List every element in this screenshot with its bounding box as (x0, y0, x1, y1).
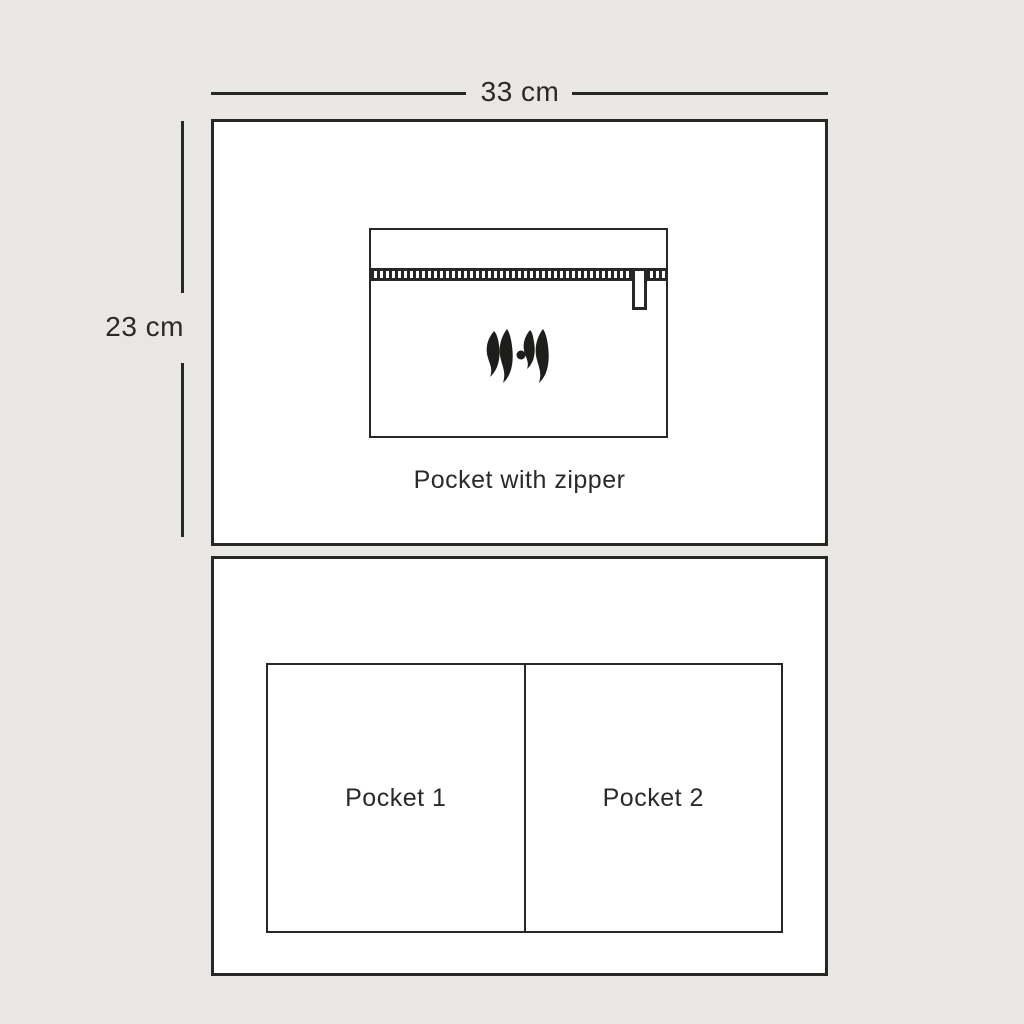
zipper-teeth (371, 268, 666, 281)
width-dimension-line-left (211, 92, 466, 95)
pocket-1: Pocket 1 (268, 665, 526, 931)
height-dimension-line-bottom (181, 363, 184, 537)
zipper-pull (632, 268, 647, 310)
bag-spec-diagram: 33 cm 23 cm Pocket with zipp (0, 0, 1024, 1024)
front-panel-caption: Pocket with zipper (214, 466, 825, 495)
height-dimension-label: 23 cm (70, 311, 184, 343)
width-dimension-label: 33 cm (455, 76, 585, 108)
pocket-2-label: Pocket 2 (603, 784, 704, 813)
front-panel: Pocket with zipper (211, 119, 828, 546)
brand-monogram-icon (483, 328, 555, 386)
brand-monogram-logo (483, 328, 555, 386)
width-dimension-line-right (572, 92, 828, 95)
slip-pockets: Pocket 1 Pocket 2 (266, 663, 783, 933)
pocket-2: Pocket 2 (526, 665, 782, 931)
pocket-1-label: Pocket 1 (345, 784, 446, 813)
height-dimension-line-top (181, 121, 184, 293)
zipper-pocket (369, 228, 668, 438)
back-panel: Pocket 1 Pocket 2 (211, 556, 828, 976)
